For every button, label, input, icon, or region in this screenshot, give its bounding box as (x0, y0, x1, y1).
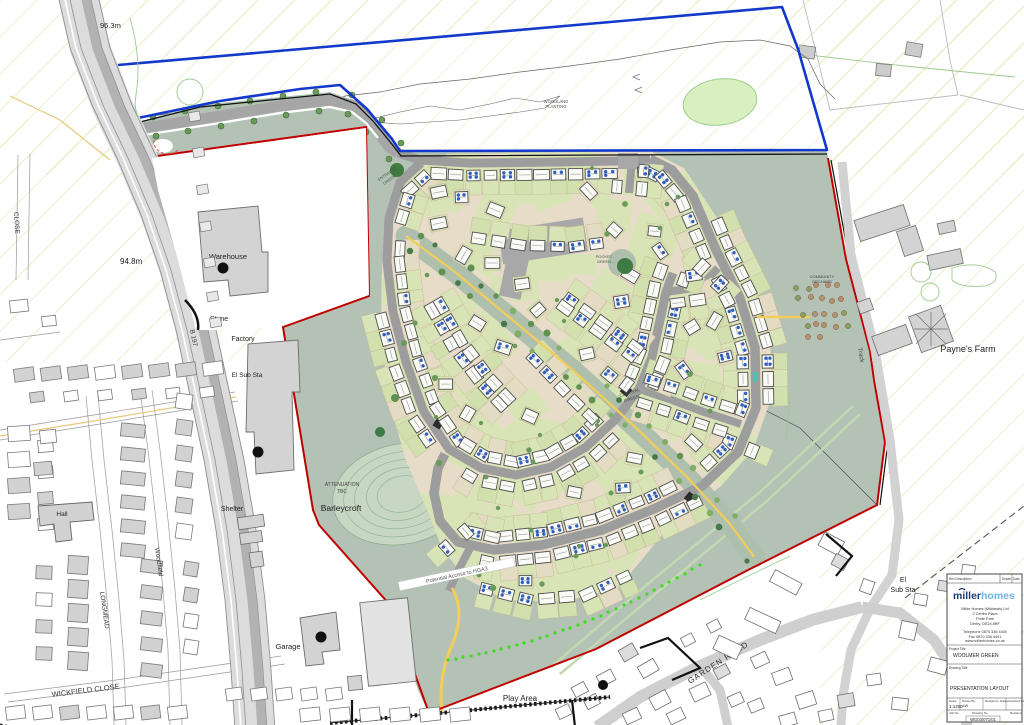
svg-text:Miller Homes (Midlands) Ltd: Miller Homes (Midlands) Ltd (961, 607, 1008, 611)
svg-text:Designers: Dates: Designers: Dates (985, 699, 1009, 703)
svg-text:Play Area: Play Area (503, 694, 538, 703)
svg-text:WOOLMER GREEN: WOOLMER GREEN (953, 653, 999, 659)
svg-text:94.8m: 94.8m (120, 257, 143, 266)
svg-text:Pride Park: Pride Park (976, 617, 994, 621)
svg-text:Derby, DE24 8RF: Derby, DE24 8RF (970, 622, 1000, 626)
svg-text:GREEN: GREEN (597, 259, 611, 264)
svg-text:Shelter: Shelter (221, 506, 244, 513)
svg-text:Payne's Farm: Payne's Farm (940, 344, 995, 354)
svg-text:Factory: Factory (231, 336, 255, 343)
svg-text:TBC: TBC (337, 489, 347, 495)
svg-text:Drawing Title: Drawing Title (949, 666, 968, 670)
svg-text:miller: miller (953, 590, 981, 602)
svg-text:Barleycroft: Barleycroft (321, 503, 362, 513)
svg-text:Job No: Job No (949, 711, 959, 715)
svg-text:1:1250: 1:1250 (949, 704, 963, 709)
svg-text:Telephone 0870 336 4400: Telephone 0870 336 4400 (963, 630, 1007, 634)
svg-text:El Sub Sta: El Sub Sta (232, 372, 263, 379)
svg-text:Garage: Garage (275, 642, 300, 651)
svg-text:LW: LW (963, 704, 969, 708)
svg-text:Revision: Revision (1010, 711, 1022, 715)
svg-text:Scale: Scale (949, 699, 957, 703)
svg-text:www.millerhomes.co.uk: www.millerhomes.co.uk (965, 639, 1005, 643)
svg-text:Drawing No: Drawing No (972, 711, 988, 715)
svg-text:Drawn By: Drawn By (962, 699, 976, 703)
svg-text:2 Centro Place: 2 Centro Place (972, 612, 997, 616)
svg-text:Date: Date (1013, 577, 1020, 581)
svg-text:PRESENTATION LAYOUT: PRESENTATION LAYOUT (950, 686, 1009, 692)
svg-text:96.3m: 96.3m (100, 21, 121, 30)
svg-text:homes: homes (981, 590, 1015, 602)
svg-text:WG03/071/01: WG03/071/01 (970, 717, 997, 722)
svg-text:Project Title: Project Title (949, 647, 966, 651)
svg-text:Drawn: Drawn (1002, 577, 1011, 581)
svg-text:ATTENUATION: ATTENUATION (325, 482, 360, 488)
svg-text:Rev Description: Rev Description (949, 577, 972, 581)
svg-text:El: El (900, 577, 907, 584)
svg-text:Hall: Hall (56, 511, 68, 518)
svg-text:Checked Dates: Checked Dates (1008, 699, 1024, 703)
svg-text:Sub Sta: Sub Sta (891, 587, 916, 594)
svg-text:ORCHARD: ORCHARD (812, 279, 832, 284)
